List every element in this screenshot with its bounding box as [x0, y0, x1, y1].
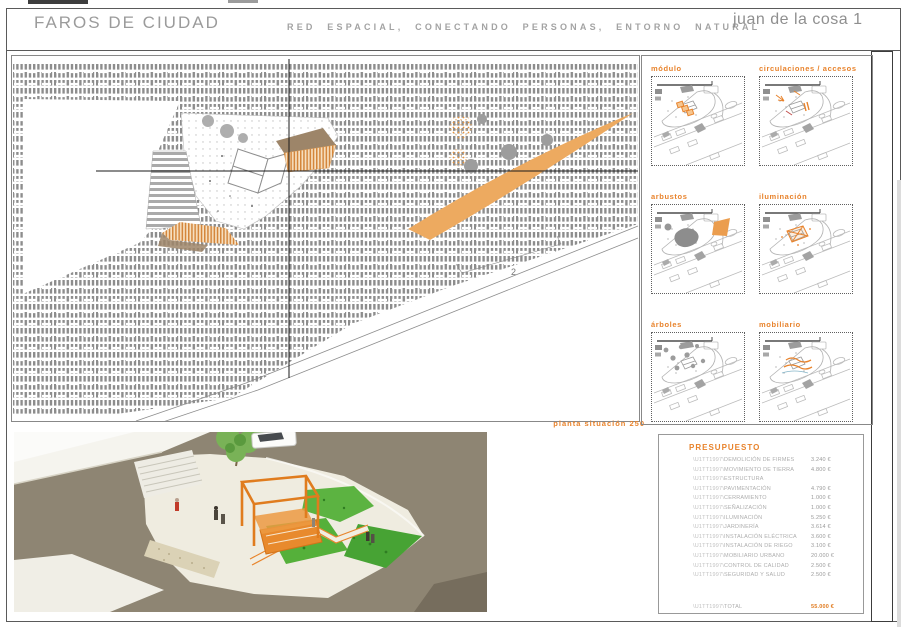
budget-item-code: \U1TT1997\	[693, 534, 724, 540]
thumb-mobiliario-drawing	[759, 332, 853, 422]
budget-item-value: 3.614 €	[811, 524, 831, 530]
thumb-cell-circulaciones: circulaciones / accesos	[759, 64, 857, 171]
thumb-cell-arbustos: arbustos	[651, 192, 749, 299]
thumb-label-modulo: módulo	[651, 64, 749, 76]
scan-artifact	[228, 0, 258, 3]
thumb-label-iluminacion: iluminación	[759, 192, 857, 204]
budget-item-label: MOBILIARIO URBANO	[724, 553, 785, 559]
budget-item-label: ESTRUCTURA	[724, 476, 764, 482]
budget-item-code: \U1TT1997\	[693, 572, 724, 578]
budget-total-value: 55.000 €	[811, 604, 834, 610]
page-title: FAROS DE CIUDAD	[34, 13, 220, 33]
budget-row: \U1TT1997\MOBILIARIO URBANO 20.000 €	[659, 553, 863, 563]
budget-title: PRESUPUESTO	[689, 443, 760, 452]
budget-item-label: CONTROL DE CALIDAD	[724, 563, 789, 569]
budget-row: \U1TT1997\CERRAMIENTO 1.000 €	[659, 495, 863, 505]
orange-stipple-1	[449, 115, 473, 139]
header-divider	[6, 50, 901, 51]
thumb-cell-iluminacion: iluminación	[759, 192, 857, 299]
budget-item-code: \U1TT1997\	[693, 495, 724, 501]
budget-item-code: \U1TT1997\	[693, 515, 724, 521]
budget-item-label: CERRAMIENTO	[724, 495, 767, 501]
budget-item-value: 3.600 €	[811, 534, 831, 540]
plan-annotation: 2	[511, 267, 516, 277]
thumb-modulo-drawing	[651, 76, 745, 166]
budget-item-label: SEGURIDAD Y SALUD	[724, 572, 785, 578]
budget-row: \U1TT1997\SEÑALIZACIÓN 1.000 €	[659, 505, 863, 515]
budget-item-value: 3.100 €	[811, 543, 831, 549]
budget-item-value: 3.240 €	[811, 457, 831, 463]
thumb-arbustos-drawing	[651, 204, 745, 294]
budget-item-code: \U1TT1997\	[693, 563, 724, 569]
thumb-cell-arboles: árboles	[651, 320, 749, 427]
budget-row: \U1TT1997\CONTROL DE CALIDAD 2.500 €	[659, 563, 863, 573]
budget-row: \U1TT1997\PAVIMENTACIÓN 4.790 €	[659, 486, 863, 496]
perspective-render	[14, 432, 487, 612]
budget-row: \U1TT1997\JARDINERÍA 3.614 €	[659, 524, 863, 534]
budget-item-value: 2.500 €	[811, 572, 831, 578]
budget-row: \U1TT1997\ESTRUCTURA	[659, 476, 863, 486]
thumb-iluminacion-drawing	[759, 204, 853, 294]
budget-item-value: 4.800 €	[811, 467, 831, 473]
budget-item-label: ILUMINACIÓN	[724, 515, 762, 521]
budget-item-code: \U1TT1997\	[693, 505, 724, 511]
budget-item-label: PAVIMENTACIÓN	[724, 486, 771, 492]
budget-item-code: \U1TT1997\	[693, 476, 724, 482]
site-plan-drawing: 2	[12, 56, 639, 421]
plan-caption: planta situación 250	[420, 419, 645, 428]
budget-total-row: \U1TT1997\TOTAL 55.000 €	[659, 604, 863, 614]
thumb-circulaciones-drawing	[759, 76, 853, 166]
thumb-label-arbustos: arbustos	[651, 192, 749, 204]
thumb-cell-mobiliario: mobiliario	[759, 320, 857, 427]
budget-item-label: SEÑALIZACIÓN	[724, 505, 767, 511]
title-block-strip	[871, 51, 893, 622]
thumb-label-arboles: árboles	[651, 320, 749, 332]
budget-item-label: DEMOLICIÓN DE FIRMES	[724, 457, 794, 463]
budget-list: \U1TT1997\DEMOLICIÓN DE FIRMES 3.240 € \…	[659, 457, 863, 582]
thumb-label-mobiliario: mobiliario	[759, 320, 857, 332]
budget-item-code: \U1TT1997\	[693, 553, 724, 559]
page-subtitle: RED ESPACIAL, CONECTANDO PERSONAS, ENTOR…	[287, 22, 760, 32]
budget-item-code: \U1TT1997\	[693, 524, 724, 530]
thumb-label-circulaciones: circulaciones / accesos	[759, 64, 857, 76]
budget-row: \U1TT1997\INSTALACIÓN ELÉCTRICA 3.600 €	[659, 534, 863, 544]
budget-item-label: MOVIMIENTO DE TIERRA	[724, 467, 794, 473]
thumb-cell-modulo: módulo	[651, 64, 749, 171]
budget-total-code: \U1TT1997\	[693, 604, 724, 610]
budget-item-code: \U1TT1997\	[693, 486, 724, 492]
scan-artifact	[28, 0, 88, 4]
budget-item-value: 2.500 €	[811, 563, 831, 569]
budget-item-code: \U1TT1997\	[693, 467, 724, 473]
budget-item-code: \U1TT1997\	[693, 543, 724, 549]
budget-row: \U1TT1997\INSTALACIÓN DE RIEGO 3.100 €	[659, 543, 863, 553]
analysis-panel: módulo circulaciones / accesos arbustos	[641, 55, 873, 425]
budget-item-value: 5.250 €	[811, 515, 831, 521]
budget-item-value: 4.790 €	[811, 486, 831, 492]
budget-item-label: INSTALACIÓN ELÉCTRICA	[724, 534, 797, 540]
car	[251, 432, 296, 448]
sheet-edge-shadow	[897, 180, 901, 627]
budget-row: \U1TT1997\MOVIMIENTO DE TIERRA 4.800 €	[659, 467, 863, 477]
budget-item-value: 1.000 €	[811, 495, 831, 501]
budget-item-label: JARDINERÍA	[724, 524, 759, 530]
budget-item-value: 1.000 €	[811, 505, 831, 511]
site-plan-frame: 2	[11, 55, 640, 422]
budget-item-label: INSTALACIÓN DE RIEGO	[724, 543, 793, 549]
thumb-arboles-drawing	[651, 332, 745, 422]
project-name: juan de la cosa 1	[733, 11, 862, 29]
budget-row: \U1TT1997\DEMOLICIÓN DE FIRMES 3.240 €	[659, 457, 863, 467]
budget-item-value: 20.000 €	[811, 553, 834, 559]
budget-item-code: \U1TT1997\	[693, 457, 724, 463]
render-drawing	[14, 432, 487, 612]
budget-row: \U1TT1997\ILUMINACIÓN 5.250 €	[659, 515, 863, 525]
budget-total-label: TOTAL	[724, 604, 742, 610]
budget-row: \U1TT1997\SEGURIDAD Y SALUD 2.500 €	[659, 572, 863, 582]
budget-panel: PRESUPUESTO \U1TT1997\DEMOLICIÓN DE FIRM…	[658, 434, 864, 614]
